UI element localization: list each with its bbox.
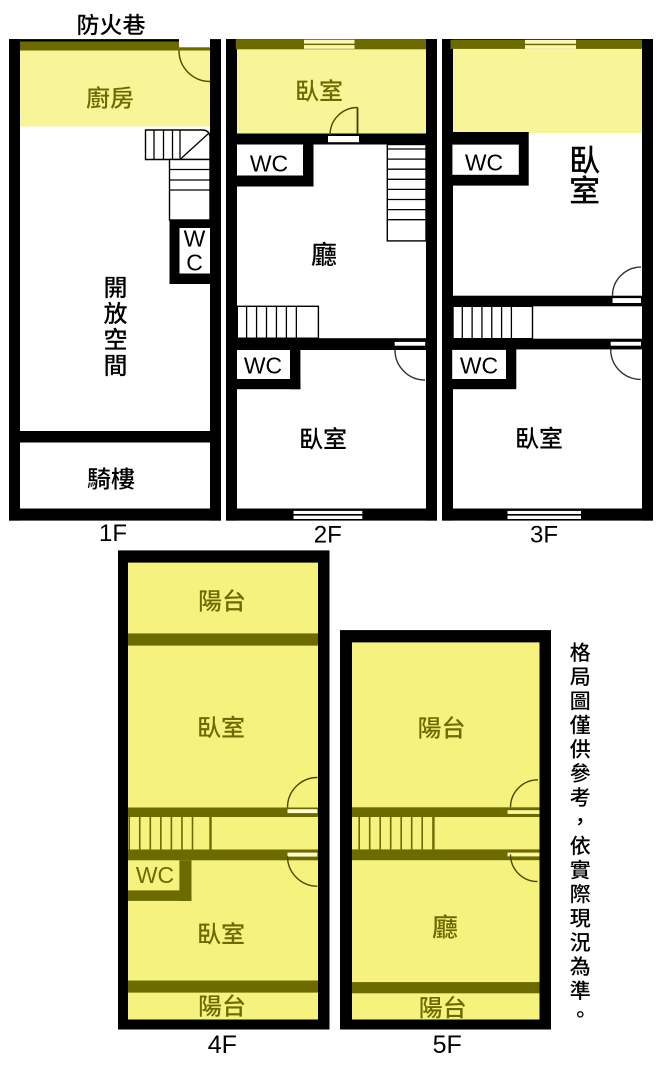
svg-text:4F: 4F — [208, 1031, 237, 1059]
svg-text:WC: WC — [250, 151, 288, 177]
svg-text:W: W — [184, 225, 206, 251]
svg-text:3F: 3F — [530, 522, 558, 549]
svg-text:2F: 2F — [314, 522, 342, 549]
svg-text:WC: WC — [136, 862, 174, 888]
svg-text:1F: 1F — [99, 520, 127, 547]
svg-text:C: C — [186, 250, 203, 276]
svg-text:WC: WC — [465, 150, 503, 176]
svg-text:WC: WC — [244, 353, 282, 379]
svg-text:5F: 5F — [433, 1031, 462, 1059]
svg-text:WC: WC — [460, 353, 498, 379]
